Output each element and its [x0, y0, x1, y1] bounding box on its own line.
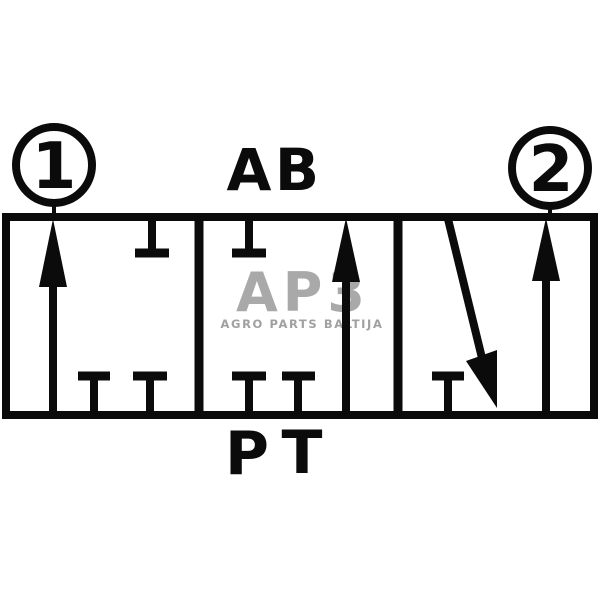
- port-1-number: 1: [32, 130, 77, 204]
- section2-flow-arrowhead: [332, 218, 360, 282]
- port-a-label: A: [227, 136, 272, 204]
- port-t-label: T: [282, 418, 323, 488]
- section3-flow-arrowhead: [532, 218, 560, 281]
- port-2-number: 2: [529, 133, 574, 207]
- valve-schematic: AP3 AGRO PARTS BALTIJA: [0, 0, 600, 600]
- port-p-label: P: [225, 419, 269, 489]
- section1-flow-arrowhead: [39, 219, 67, 287]
- valve-schematic-canvas: AP3 AGRO PARTS BALTIJA: [0, 0, 600, 600]
- section3-diagonal-arrow-shaft: [448, 219, 482, 358]
- port-b-label: B: [275, 136, 319, 204]
- watermark-subtitle-text: AGRO PARTS BALTIJA: [221, 317, 384, 331]
- watermark: AP3 AGRO PARTS BALTIJA: [221, 261, 384, 331]
- section3-diagonal-arrowhead: [466, 350, 497, 408]
